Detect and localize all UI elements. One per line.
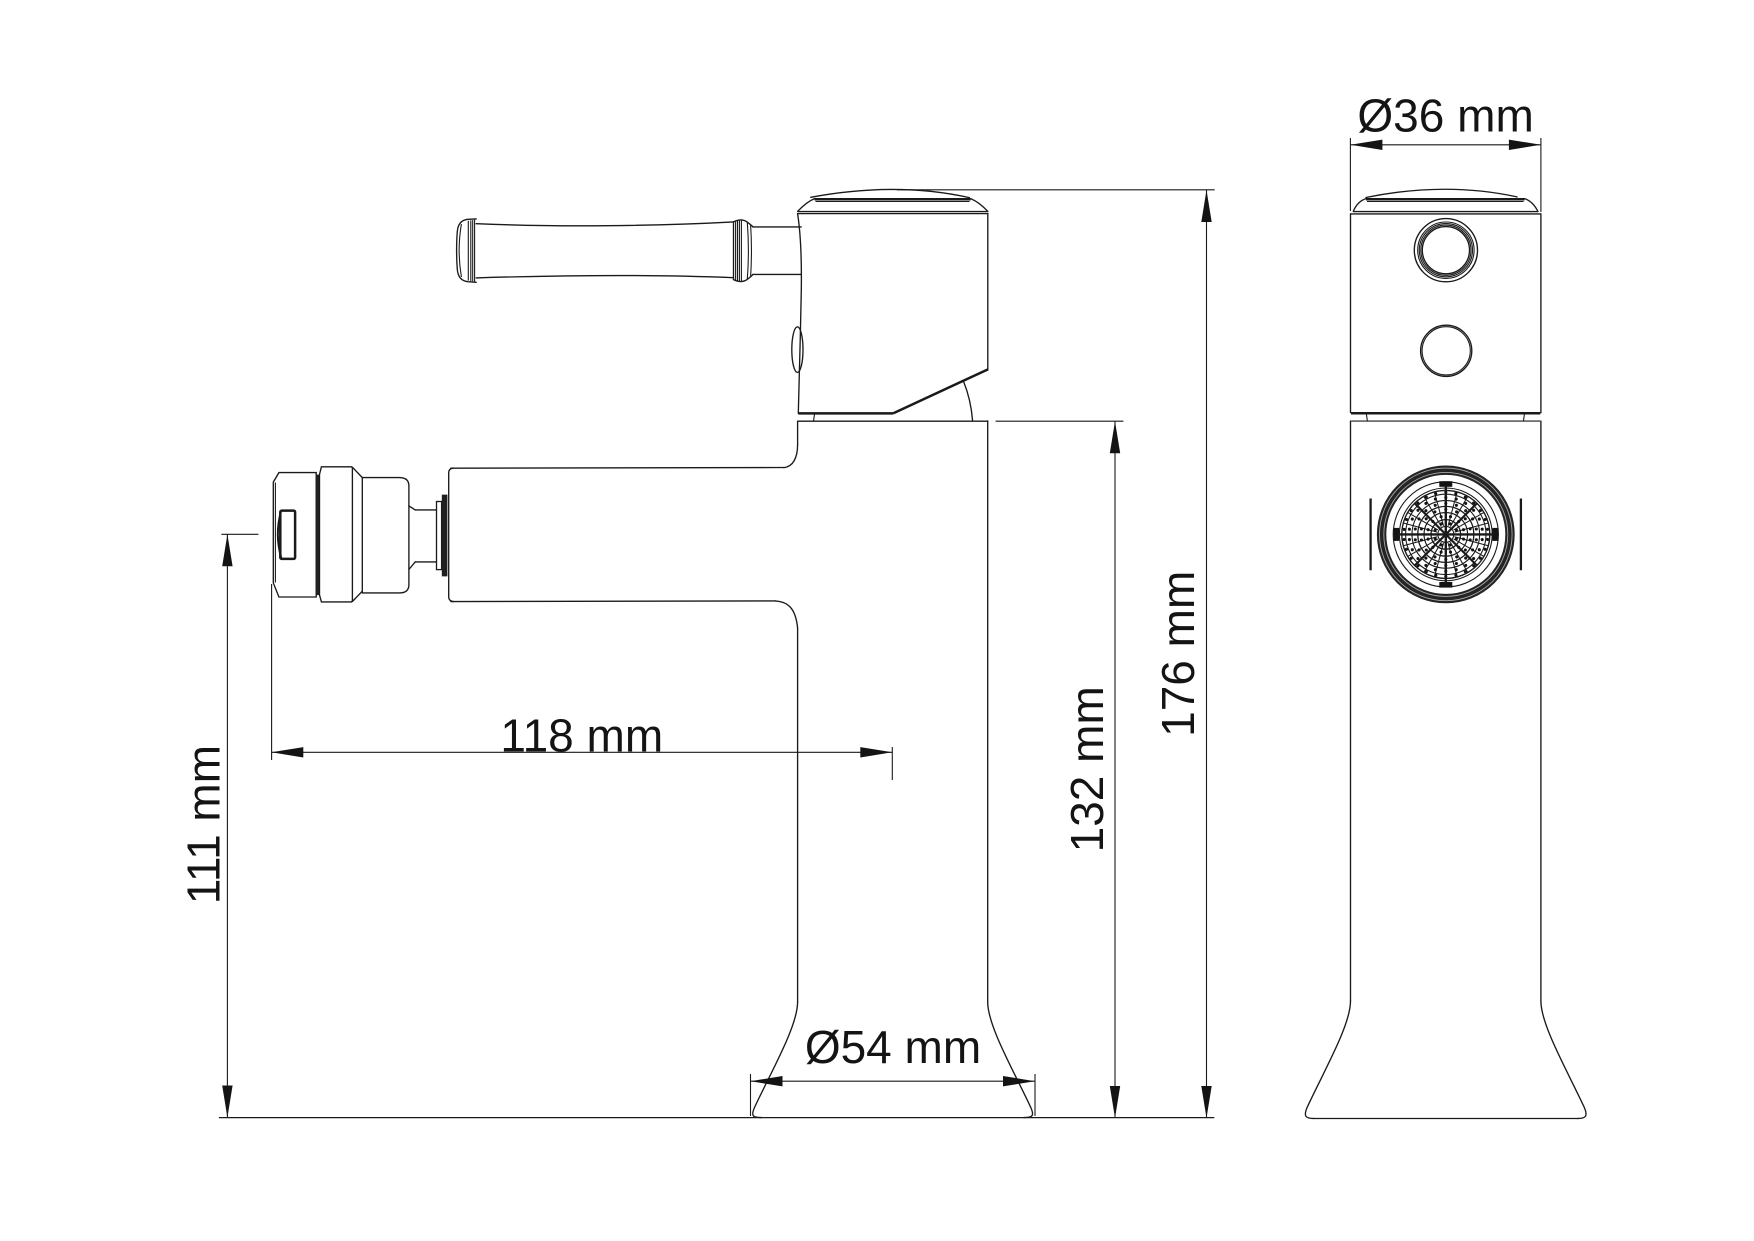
svg-text:118 mm: 118 mm xyxy=(500,710,663,762)
svg-text:111 mm: 111 mm xyxy=(178,745,230,904)
svg-text:176 mm: 176 mm xyxy=(1152,571,1204,737)
svg-text:Ø36 mm: Ø36 mm xyxy=(1357,90,1533,142)
svg-text:132 mm: 132 mm xyxy=(1061,686,1113,852)
svg-text:Ø54 mm: Ø54 mm xyxy=(805,1021,981,1073)
